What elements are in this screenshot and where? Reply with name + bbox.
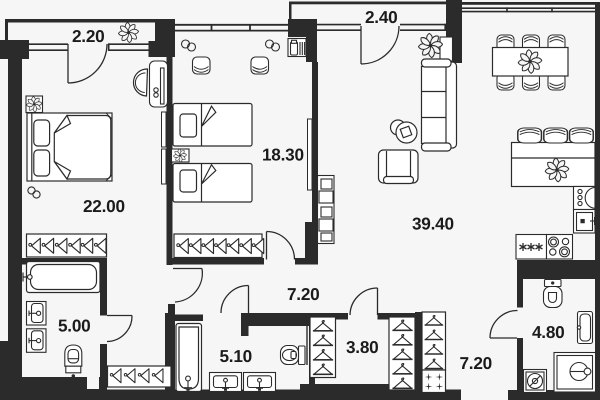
svg-text:39.40: 39.40	[412, 214, 454, 234]
svg-text:7.20: 7.20	[460, 353, 492, 373]
svg-text:5.10: 5.10	[220, 346, 252, 366]
svg-text:7.20: 7.20	[287, 284, 319, 304]
svg-text:2.20: 2.20	[72, 26, 104, 46]
svg-text:3.80: 3.80	[346, 337, 378, 357]
svg-text:22.00: 22.00	[83, 196, 125, 216]
svg-text:4.80: 4.80	[532, 322, 564, 342]
svg-text:2.40: 2.40	[365, 7, 397, 27]
svg-text:5.00: 5.00	[58, 316, 90, 336]
svg-text:18.30: 18.30	[262, 145, 304, 165]
